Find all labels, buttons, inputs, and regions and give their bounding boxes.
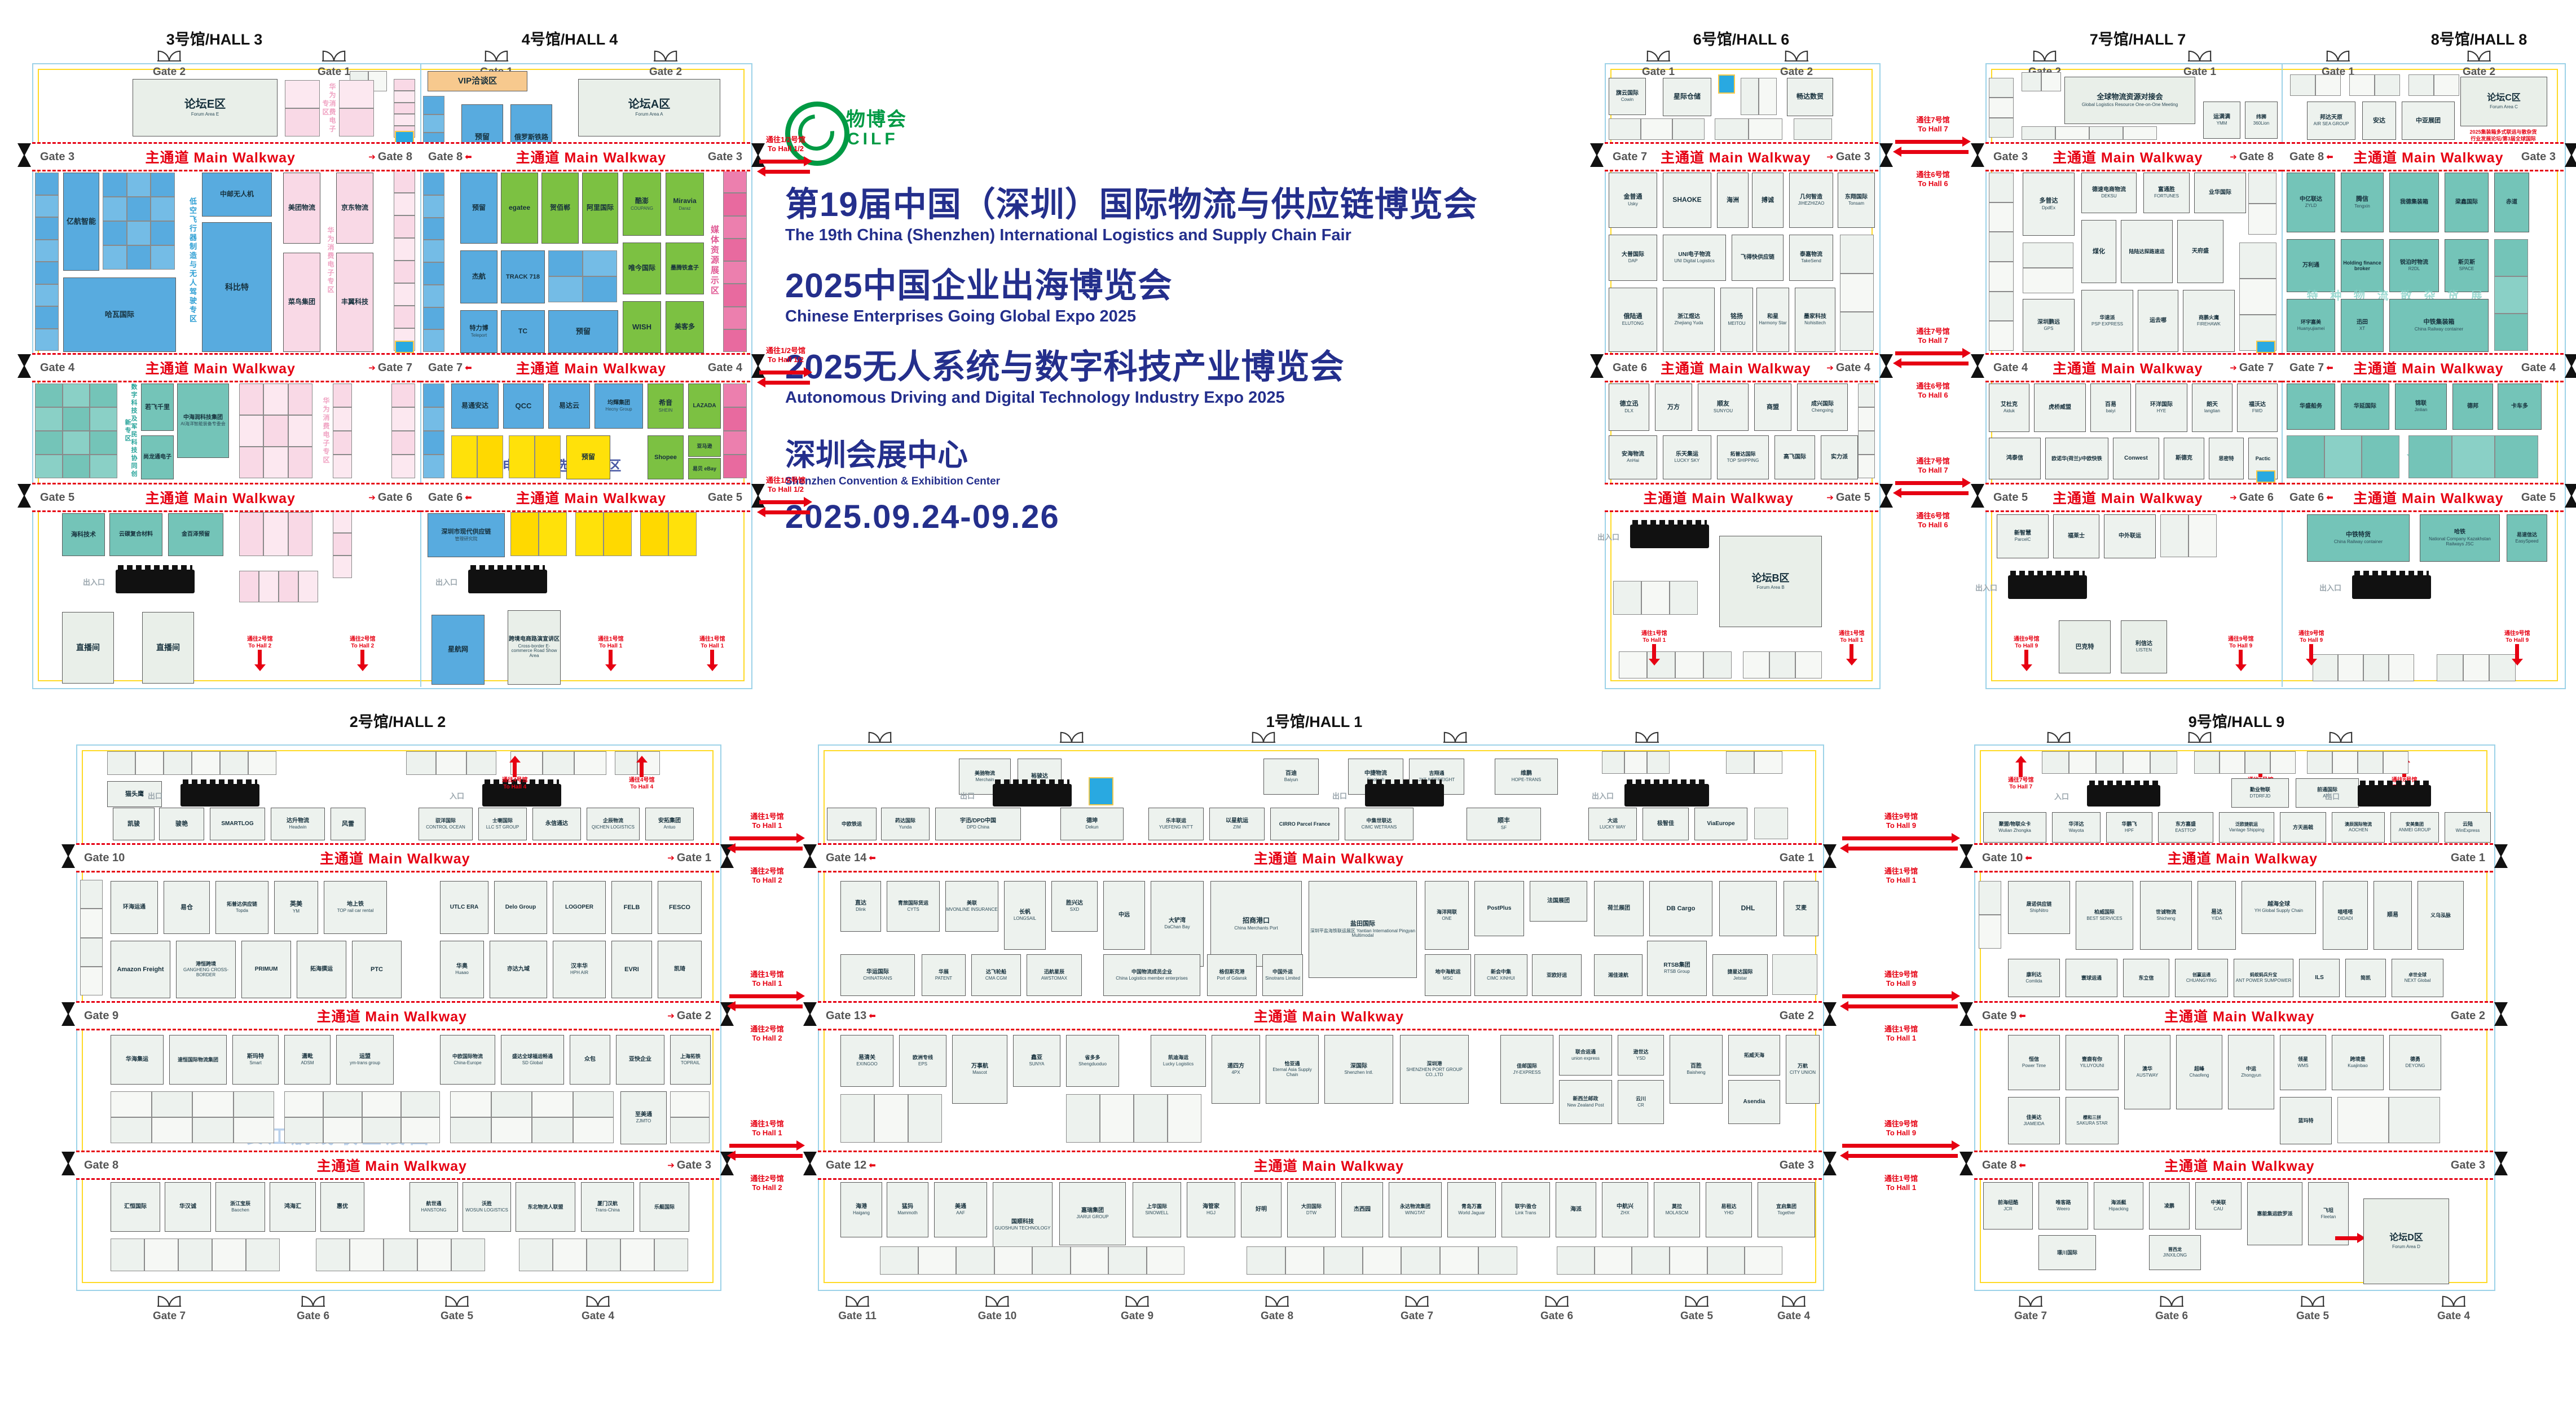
booth-label: 拓海撰运: [310, 966, 333, 973]
booth-sublabel: ym-trans group: [350, 1061, 380, 1066]
booth-label: ViaEurope: [1707, 821, 1734, 827]
walkway-label: 主通道 Main Walkway: [2028, 1155, 2451, 1175]
booth: EVRI: [611, 941, 652, 998]
booth: 长帆LONGSAIL: [1004, 881, 1046, 950]
booth: 易达YIDA: [2198, 881, 2236, 950]
booth: 厦门汉航Trans-China: [581, 1182, 634, 1232]
walkway-end-gate-icon: [61, 1152, 75, 1175]
main-walkway: Gate 9⬅主通道 Main WalkwayGate 2: [1974, 1001, 2493, 1030]
booth-sublabel: ZJMTO: [636, 1119, 651, 1124]
booth: 潇毗ADSM: [284, 1035, 331, 1085]
booth-label: Asendia: [1743, 1099, 1765, 1105]
booth: [423, 307, 444, 330]
booth-sublabel: Shenzhen Intl.: [1344, 1070, 1373, 1076]
booth-sublabel: ANMEI GROUP: [2399, 828, 2431, 833]
booth: 荷兰展团: [1594, 881, 1644, 936]
booth-sublabel: JCR: [2003, 1207, 2013, 1212]
booth: 佳美达JIAMEIDA: [2008, 1097, 2060, 1144]
booth-grid: [1613, 581, 1698, 615]
walkway-label: 主通道 Main Walkway: [2028, 1006, 2451, 1026]
gate-label: Gate 6: [297, 1310, 329, 1323]
walkway-mini-arrow: ⬅: [869, 853, 876, 863]
booth: [406, 751, 436, 775]
booth: UNI电子物流UNI Digital Logistics: [1663, 235, 1726, 281]
booth-label: 艾麦: [1795, 905, 1807, 912]
booth: 星际仓储: [1663, 78, 1711, 116]
booth: 联合运通union express: [1559, 1035, 1612, 1076]
booth: [670, 1117, 710, 1143]
booth: [323, 1091, 362, 1117]
booth-label: 新西兰邮政: [1573, 1096, 1598, 1101]
booth: 均輝集团Hecny Group: [595, 384, 643, 429]
booth: 达升物流Headwin: [271, 808, 325, 840]
booth: 商盟: [1754, 384, 1791, 431]
booth: [1641, 581, 1670, 615]
booth-sublabel: DIDADI: [2337, 916, 2353, 922]
booth-label: 易仓: [180, 904, 193, 911]
booth-label: 凯骏: [127, 821, 140, 828]
booth: 哈铁National Company Kazakhstan Railways J…: [2420, 514, 2500, 562]
booth-sublabel: QICHEN LOGISTICS: [592, 825, 635, 830]
to-hall-label: 通往9号馆To Hall 9: [2228, 636, 2254, 650]
walkway-end-gate-icon: [2565, 143, 2576, 167]
booth: 蓝玛特: [2280, 1097, 2332, 1144]
booth: QCC: [503, 384, 544, 429]
walkway-gate-right: Gate 1: [677, 852, 711, 865]
walkway-gate-left: Gate 10: [84, 852, 125, 865]
booth-label: 成兴国际: [1811, 401, 1834, 408]
booth: 中运Zhongyun: [2228, 1035, 2274, 1109]
booth-grid: [1715, 118, 1782, 140]
booth-grid: [1066, 1094, 1201, 1143]
booth: 前海纽酷JCR: [1983, 1182, 2033, 1229]
to-hall-arrow: 通往1号馆To Hall 1: [598, 636, 624, 671]
walkway-label: 主通道 Main Walkway: [118, 1006, 665, 1026]
booth: [2123, 126, 2157, 140]
booth-sublabel: CONTROL OCEAN: [426, 825, 465, 830]
booth: 中铁集装箱China Railway container: [2389, 299, 2489, 352]
booth-grid: [575, 512, 632, 556]
arrow-left: [1901, 362, 1969, 365]
booth: 环洋国际HYE: [2135, 384, 2187, 432]
booth: [553, 1239, 587, 1271]
booth: [1749, 118, 1782, 140]
booth: 东翔国际Tonsam: [1838, 173, 1875, 228]
booth-label: 达升物流: [287, 818, 309, 825]
booth: [519, 1239, 553, 1271]
booth-label: 前海纽酷: [1998, 1200, 2018, 1205]
booth-sublabel: Aiduk: [2003, 409, 2015, 414]
booth: [1989, 321, 2014, 351]
booth-label: 亚马逊: [697, 443, 712, 449]
booth-label: SHAOKE: [1672, 196, 1701, 204]
booth: [640, 512, 668, 556]
gate-door-icon: [2187, 48, 2213, 65]
booth-sublabel: ONE: [1442, 916, 1451, 922]
booth: [994, 1246, 1033, 1275]
walkway-gate-left: Gate 9: [84, 1010, 118, 1023]
booth-sublabel: Shengduoduo: [1078, 1062, 1107, 1067]
booth: [1840, 235, 1874, 274]
booth: 海派: [1556, 1182, 1596, 1237]
booth: [2363, 654, 2389, 681]
booth: [2389, 1097, 2440, 1143]
booth: [1440, 1246, 1479, 1275]
booth-sublabel: HPF: [2125, 829, 2134, 834]
walkway-gate-right: Gate 3: [1780, 1159, 1814, 1172]
booth: [192, 1117, 234, 1143]
elevator-icon: [1089, 777, 1113, 805]
booth: 中国物流成员企业China Logistics member enterpris…: [1103, 954, 1200, 996]
booth-sublabel: WMS: [2297, 1064, 2309, 1069]
booth-label: 风雷: [342, 821, 354, 828]
booth: VIP洽谈区: [428, 71, 527, 91]
booth-sublabel: Global Logistics Resource One-on-One Mee…: [2082, 103, 2178, 108]
walkway-gate-left: Gate 9: [1982, 1010, 2016, 1023]
booth-label: 新会中集: [1491, 969, 1511, 975]
booth: 迅田XT: [2341, 299, 2384, 352]
booth-sublabel: HANSTONG: [421, 1208, 446, 1213]
booth-grid: [391, 384, 415, 478]
booth-label: PostPlus: [1487, 905, 1512, 912]
booth: [239, 571, 259, 602]
walkway-gate-left: Gate 12: [826, 1159, 866, 1172]
booth: [1032, 1246, 1071, 1275]
booth-label: 星际仓储: [1674, 93, 1701, 101]
booth: 卡车多: [2498, 384, 2542, 430]
to-hall-label: 通往4号馆To Hall 4: [502, 777, 528, 791]
walkway-gate-right: Gate 2: [677, 1010, 711, 1023]
booth-label: QCC: [516, 402, 532, 411]
walkway-gate-left: Gate 7: [2289, 362, 2324, 374]
booth: [532, 1117, 573, 1143]
booth: 格但斯克港Port of Gdansk: [1207, 954, 1257, 996]
booth: [35, 329, 59, 351]
booth: 璟川国际: [2038, 1235, 2096, 1270]
booth: 简凯: [2345, 959, 2386, 997]
booth-grid: [1741, 78, 1777, 115]
walkway-gate-right: Gate 8: [2239, 151, 2274, 164]
booth: [394, 103, 415, 114]
booth: 喵嗒嗒DIDADI: [2323, 881, 2368, 950]
booth-sublabel: Zhejiang Yuda: [1674, 321, 1703, 326]
booth: 鸿海汇: [270, 1182, 316, 1232]
zone-vertical-label: 华为消费电子专区: [323, 80, 336, 136]
booth-label: 省多多: [1085, 1055, 1100, 1060]
booth-sublabel: ShipNitro: [2030, 909, 2049, 914]
booth-sublabel: Jinlian: [2415, 408, 2428, 413]
booth: 论坛E区Forum Area E: [133, 79, 278, 136]
booth: 欧洲专线EPS: [899, 1035, 946, 1087]
booth-label: 腾信: [2356, 196, 2368, 203]
connector-arrows: [755, 498, 817, 517]
booth: [2437, 654, 2463, 681]
dock-label: 入口: [2054, 791, 2069, 801]
to-hall-label: 通往2号馆To Hall 2: [350, 636, 376, 650]
booth-label: 璟川国际: [2057, 1250, 2077, 1255]
gate-door-icon: [2325, 48, 2351, 65]
booth: [874, 1094, 908, 1143]
booth: [2055, 126, 2089, 140]
booth: [248, 751, 276, 775]
booth: [423, 431, 444, 455]
booth: 盐田国际深圳平盐海铁联运展区 Yantian International Pin…: [1309, 881, 1417, 978]
walkway-gate-left: Gate 7: [1613, 151, 1647, 164]
elevator-icon: [2256, 470, 2275, 483]
booth: [423, 173, 444, 195]
arrow-left: [765, 510, 810, 514]
booth: 晋西龙JINXILONG: [2149, 1235, 2201, 1270]
booth: [394, 283, 415, 306]
gate-door-icon: [2300, 1293, 2326, 1310]
booth-sublabel: CMA CGM: [985, 976, 1007, 981]
booth-grid: [509, 435, 561, 478]
to-hall-label: 通往1号馆To Hall 1: [598, 636, 624, 650]
hall-connector: 通往1/2号馆To Hall 1/2: [755, 135, 817, 177]
booth-label: 至美通: [635, 1112, 652, 1118]
booth: 华汉诚: [165, 1182, 211, 1232]
booth: [2248, 204, 2276, 235]
booth-sublabel: TOP SHIPPING: [1727, 459, 1759, 464]
booth-sublabel: Smart: [249, 1061, 261, 1066]
booth: 中铁特货China Railway container: [2307, 514, 2410, 562]
booth: 青岛万嘉World Jaguar: [1447, 1182, 1496, 1237]
to-hall-label: 通往4号馆To Hall 4: [629, 777, 655, 791]
booth: 哈瓦国际: [63, 277, 176, 352]
booth: 顺丰SF: [1467, 808, 1541, 840]
booth-label: 思密特: [2218, 456, 2234, 461]
arrow-right: [1842, 994, 1952, 998]
booth: 论坛D区Forum Area D: [2363, 1198, 2449, 1284]
booth-label: 中运: [2246, 1066, 2256, 1072]
booth: 亿航智能: [63, 173, 99, 271]
booth-label: 美客多: [675, 323, 695, 331]
booth-label: 深圳市现代供应链: [442, 528, 491, 536]
booth-label: 以星航运: [1226, 818, 1248, 825]
booth-label: 联宇/盈仓: [1515, 1204, 1537, 1209]
booth-label: 莫拉: [1672, 1204, 1682, 1209]
booth-label: 俄罗斯铁路: [514, 134, 548, 142]
booth-label: 亚欧好运: [1547, 972, 1567, 978]
booth-grid: [1726, 751, 1782, 774]
loading-dock-icon: [1365, 784, 1444, 807]
booth: 华海集运: [111, 1035, 164, 1085]
booth-sublabel: Port of Gdansk: [1217, 976, 1247, 981]
booth-label: 蓝玛特: [2298, 1118, 2313, 1123]
booth-label: 预留: [475, 133, 490, 142]
booth: 中邮无人机: [202, 173, 272, 217]
booth: [2362, 435, 2399, 478]
hall-title: 9号馆/HALL 9: [2189, 710, 2285, 731]
booth: 凯迪海运Lucky Logistics: [1151, 1035, 1206, 1087]
booth-label: 实力派: [1831, 454, 1848, 461]
booth: 东立信: [2123, 959, 2169, 997]
gate-door-icon: [1442, 729, 1468, 746]
booth: 安拓集团Antuo: [645, 808, 694, 840]
booth: [394, 261, 415, 283]
booth: [1401, 1246, 1440, 1275]
walkway-gate-right: Gate 5: [2521, 491, 2556, 504]
booth: 永达物流集团WINGTAT: [1389, 1182, 1442, 1237]
booth: [2463, 654, 2490, 681]
walkway-gate-right: Gate 3: [708, 151, 742, 164]
gate-label: Gate 2: [649, 66, 682, 78]
booth-sublabel: MVONLINE INSURANCE: [946, 907, 997, 913]
booth: 杰西园: [1341, 1182, 1383, 1237]
connector-label: 通往9号馆To Hall 9: [1838, 970, 1965, 989]
booth-label: 勤业物联: [2250, 787, 2270, 792]
booth: [723, 170, 747, 193]
booth-sublabel: Vantage Shipping: [2229, 828, 2265, 833]
booth: 陆陆达探路速运: [2121, 220, 2173, 283]
booth-label: 邦达天原: [2320, 114, 2342, 121]
booth-label: UNI电子物流: [1678, 252, 1710, 258]
walkway-gate-right: Gate 3: [2451, 1159, 2485, 1172]
booth: [1979, 915, 2001, 949]
booth-label: 铭扬: [1730, 313, 1743, 320]
booth-label: 华汉诚: [179, 1204, 196, 1210]
booth: [2494, 276, 2528, 314]
booth: [670, 1091, 710, 1117]
booth-label: 易速信达: [2517, 532, 2537, 537]
booth: [1641, 118, 1673, 140]
booth: [1989, 262, 2014, 292]
booth: 云碳复合材料: [109, 513, 162, 556]
booth-label: 盛达全球福运畅通: [512, 1054, 553, 1059]
booth: 省多多Shengduoduo: [1066, 1035, 1119, 1087]
booth: [2239, 279, 2276, 315]
booth: 康利达Comlida: [2008, 959, 2060, 997]
booth: [288, 447, 312, 478]
booth: [2434, 74, 2459, 96]
gate-door-icon: [1264, 1293, 1290, 1310]
booth: 永信通达: [532, 808, 581, 840]
booth: 墨腾铁盒子: [666, 243, 704, 294]
booth-label: 上华国际: [1147, 1204, 1167, 1209]
hall-connector: 通往7号馆To Hall 7通往6号馆To Hall 6: [1891, 457, 1975, 530]
booth-label: 旗云国际: [1616, 90, 1639, 97]
booth: 海管家HGJ: [1187, 1182, 1235, 1237]
booth-label: 青旅国际货运: [898, 900, 928, 906]
to-hall-label: 通往9号馆To Hall 9: [2298, 631, 2324, 644]
booth: 速恒国际物流集团: [169, 1035, 227, 1085]
booth-label: 拓普达供应链: [227, 901, 257, 907]
booth-grid: [1989, 173, 2014, 351]
booth-label: 中欧国际物流: [452, 1054, 483, 1059]
zone-vertical-label: 华为消费电子专区: [317, 384, 329, 478]
booth-label: 陆陆达探路速运: [2129, 249, 2164, 254]
booth-sublabel: CHINATRANS: [863, 976, 892, 981]
hall-connector: 通往1号馆To Hall 1通往2号馆To Hall 2: [725, 970, 809, 1043]
booth: 亚快企业: [616, 1035, 664, 1085]
booth: [35, 173, 59, 195]
booth-sublabel: MEITOU: [1728, 321, 1746, 327]
booth-sublabel: Weero: [2057, 1207, 2069, 1212]
booth-label: 中捷物流: [1364, 770, 1387, 777]
booth-label: 中集世联达: [1366, 818, 1392, 823]
zone-vertical-label: 数字科技及军民科技协同创新专区: [122, 384, 136, 478]
booth: [604, 512, 632, 556]
booth: [35, 240, 59, 262]
booth: 唯客路Weero: [2038, 1182, 2088, 1229]
hall-title: 6号馆/HALL 6: [1693, 27, 1790, 49]
booth-label: 华运国际: [866, 969, 889, 976]
booth: 百易baiyi: [2090, 384, 2131, 432]
booth-grid: [1602, 751, 1670, 774]
booth-label: 高飞国际: [1784, 454, 1806, 461]
gate-door-icon: [984, 1293, 1010, 1310]
booth: [263, 447, 288, 478]
walkway-end-gate-icon: [2565, 354, 2576, 378]
booth-label: 飞坦: [2323, 1208, 2333, 1213]
booth: 金普通Usky: [1609, 173, 1657, 228]
booth-label: 领星: [2298, 1056, 2308, 1062]
booth-label: 聚盟/物联众卡: [1999, 821, 2031, 827]
booth-label: 预留: [472, 204, 486, 212]
booth-grid: [1754, 808, 1788, 839]
booth-label: 中海润科技集团: [183, 415, 223, 421]
booth-label: 潇毗: [302, 1054, 313, 1060]
booth: 跨境电商路演宣讲区Cross-border E-commerce Road Sh…: [508, 610, 561, 685]
booth-sublabel: Jetstar: [1733, 976, 1747, 981]
booth-label: 康利达: [2026, 972, 2041, 977]
gate-door-icon: [1544, 1293, 1570, 1310]
booth: [1772, 954, 1817, 995]
booth: 万方: [1655, 384, 1692, 431]
booth: [2069, 751, 2096, 774]
booth: 朗天langtian: [2192, 384, 2232, 432]
booth: [574, 751, 606, 775]
hall-title: 4号馆/HALL 4: [522, 27, 618, 49]
booth: [466, 751, 496, 775]
walkway-mini-arrow: ⬅: [2326, 152, 2333, 162]
connector-arrows: [1838, 834, 1965, 853]
walkway-label: 主通道 Main Walkway: [474, 147, 708, 167]
booth: [35, 455, 63, 478]
booth-grid: [880, 1246, 1184, 1275]
booth: 酷澎COUPANG: [623, 173, 661, 236]
booth: [2408, 435, 2452, 478]
booth-label: 预留: [582, 453, 595, 461]
booth: 斯玛特Smart: [232, 1035, 279, 1085]
connector-label: 通往1/2号馆To Hall 1/2: [755, 346, 817, 365]
arrow-left: [735, 1004, 803, 1008]
booth: [35, 431, 63, 455]
booth-label: 迅航星辰: [1044, 969, 1064, 975]
booth: 旗云国际Cowin: [1609, 78, 1646, 115]
to-hall-label: 通往1号馆To Hall 1: [1641, 631, 1667, 644]
gate-door-icon: [156, 1293, 182, 1310]
booth: 菜鸟集团: [283, 253, 320, 352]
booth-label: 海管家: [1203, 1204, 1219, 1210]
booth: [1168, 1094, 1201, 1143]
booth-label: 云川: [1636, 1096, 1646, 1101]
booth-label: 运满满: [2213, 114, 2230, 121]
walkway-gate-right: Gate 3: [1836, 151, 1870, 164]
booth-grid: [510, 512, 567, 556]
booth: 士喇国际LLC ST GROUP: [478, 808, 527, 840]
booth: [1715, 118, 1749, 140]
booth-label: 嘉瑞集团: [1081, 1208, 1104, 1214]
booth: 直达Dlink: [840, 881, 881, 932]
booth: [350, 1239, 384, 1271]
booth-sublabel: YH Global Supply Chain: [2254, 909, 2303, 914]
booth-label: 菜鸟集团: [288, 298, 315, 306]
booth: [1989, 118, 2014, 138]
arrow-left: [1848, 1004, 1958, 1008]
booth-sublabel: DEYONG: [2406, 1064, 2425, 1069]
booth-label: 易通安达: [461, 402, 488, 410]
